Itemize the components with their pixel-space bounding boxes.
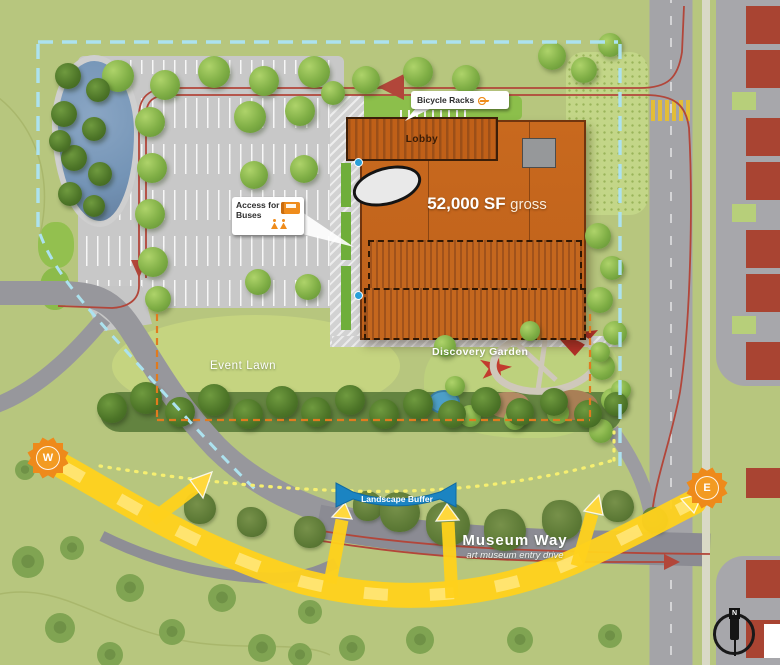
landscape-buffer-label: Landscape Buffer	[344, 494, 450, 504]
sun-west-icon: W	[30, 440, 66, 476]
bicycle-icon	[478, 95, 494, 105]
event-lawn-label: Event Lawn	[210, 360, 276, 372]
museum-site-plan: Lobby 52,000 SF gross	[0, 0, 780, 665]
sun-west-label: W	[36, 446, 60, 470]
bicycle-racks-callout: Bicycle Racks	[411, 91, 509, 109]
legend-box	[764, 624, 780, 658]
sun-east-label: E	[695, 476, 719, 500]
museum-way-subtitle: art museum entry drive	[430, 550, 600, 561]
north-arrow-icon: N	[712, 608, 758, 658]
discovery-garden-label: Discovery Garden	[432, 346, 528, 358]
person-icon	[280, 219, 287, 229]
bus-icon	[281, 202, 300, 214]
compass-north-label: N	[729, 608, 740, 619]
museum-way-label: Museum Way	[430, 532, 600, 549]
bus-access-callout: Access for Buses	[232, 197, 304, 235]
bicycle-racks-label: Bicycle Racks	[417, 95, 474, 105]
sun-east-icon: E	[689, 470, 725, 506]
labels-layer: Event Lawn Discovery Garden Museum Way a…	[0, 0, 780, 665]
person-icon	[271, 219, 278, 229]
